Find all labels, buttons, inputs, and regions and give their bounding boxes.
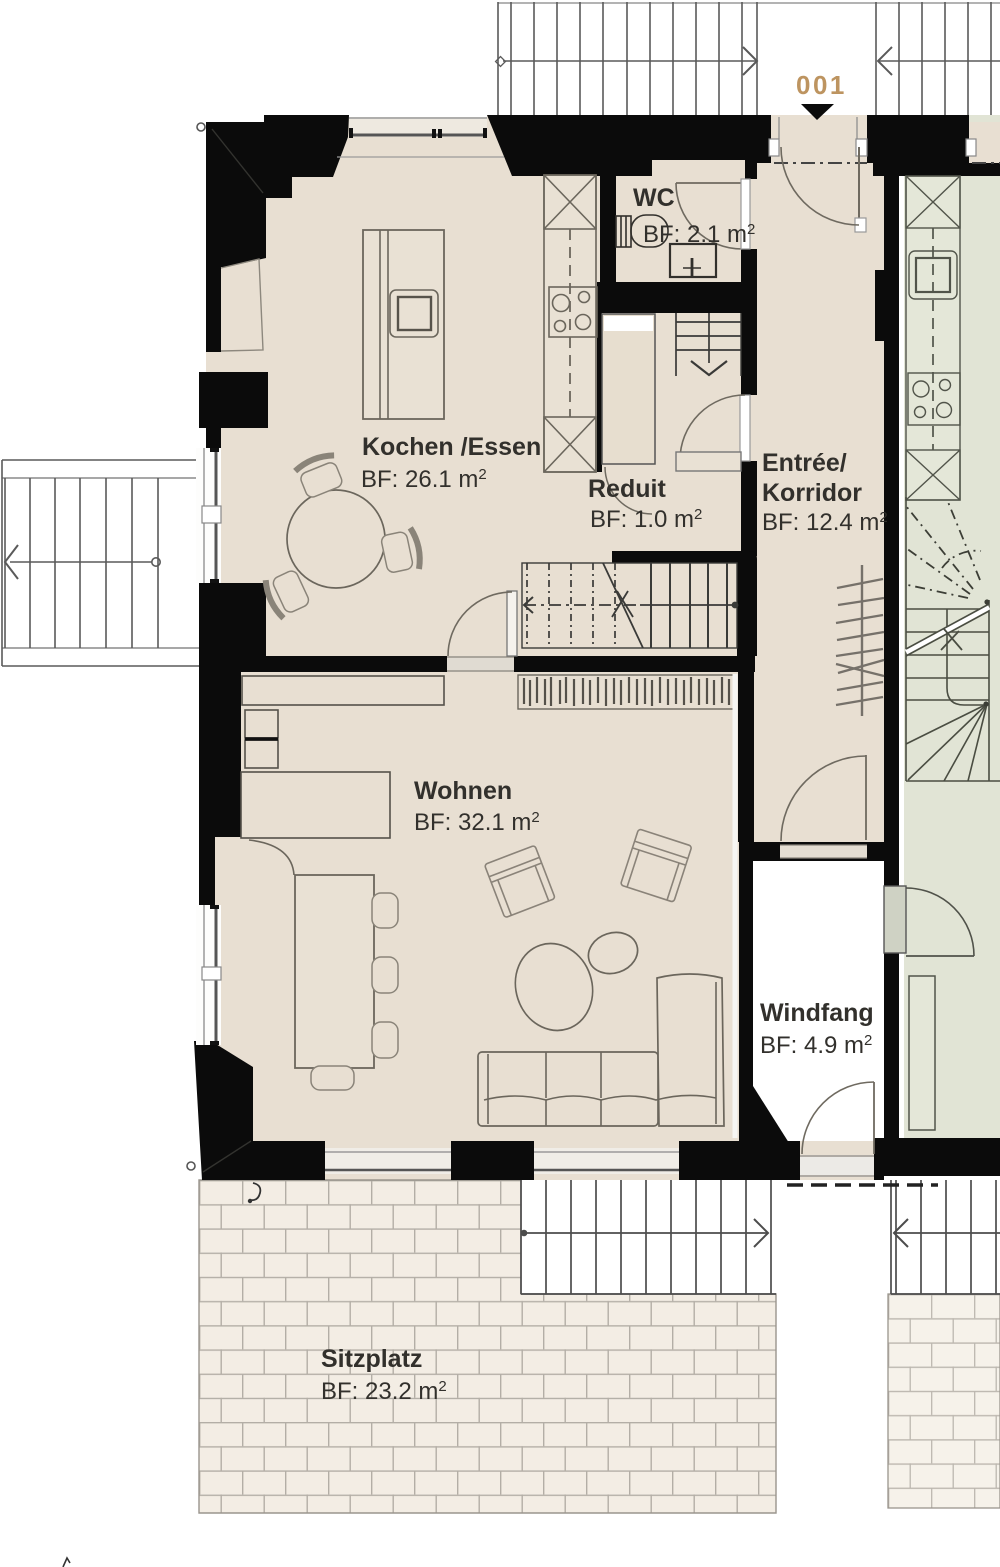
svg-text:Reduit: Reduit xyxy=(588,475,666,503)
svg-text:BF: 2.1 m2: BF: 2.1 m2 xyxy=(643,221,755,248)
svg-text:BF: 26.1 m2: BF: 26.1 m2 xyxy=(361,466,487,493)
svg-text:BF: 4.9 m2: BF: 4.9 m2 xyxy=(760,1032,872,1059)
svg-text:001: 001 xyxy=(796,70,847,100)
svg-text:Wohnen: Wohnen xyxy=(414,777,512,805)
svg-text:BF: 12.4 m2: BF: 12.4 m2 xyxy=(762,509,888,536)
svg-text:Kochen /Essen: Kochen /Essen xyxy=(362,433,541,461)
svg-text:WC: WC xyxy=(633,184,675,212)
svg-text:BF: 23.2 m2: BF: 23.2 m2 xyxy=(321,1378,447,1405)
svg-text:BF: 1.0 m2: BF: 1.0 m2 xyxy=(590,506,702,533)
svg-text:Korridor: Korridor xyxy=(762,479,862,507)
svg-text:Entrée/: Entrée/ xyxy=(762,449,847,477)
svg-text:BF: 32.1 m2: BF: 32.1 m2 xyxy=(414,809,540,836)
svg-text:Sitzplatz: Sitzplatz xyxy=(321,1345,422,1373)
svg-text:Windfang: Windfang xyxy=(760,999,874,1027)
